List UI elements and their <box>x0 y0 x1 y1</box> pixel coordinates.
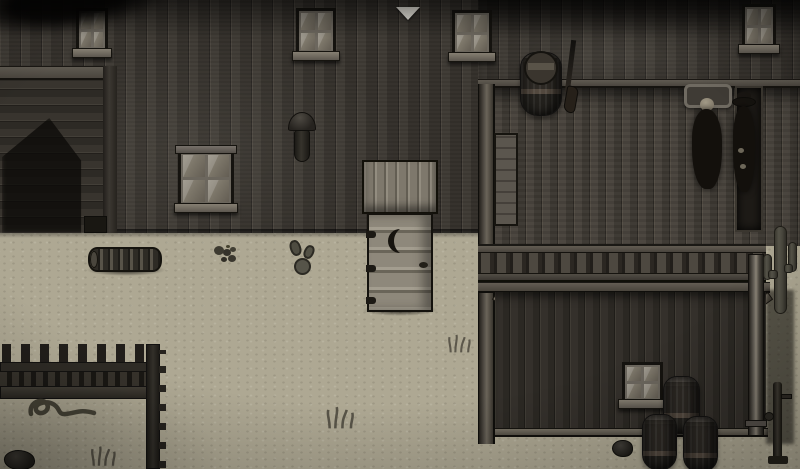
window-pane <box>183 180 205 202</box>
grass-tuft <box>88 444 120 467</box>
window-pane <box>474 15 488 32</box>
window-sill <box>738 44 780 54</box>
window-sill <box>448 52 496 62</box>
grass-tuft <box>324 404 358 430</box>
fence-side-pickets <box>159 350 166 468</box>
window-pane <box>208 155 230 177</box>
cactus-arm-joint <box>784 264 793 273</box>
window-pane <box>761 9 772 25</box>
storefront-baseboard <box>495 428 768 437</box>
window-sill <box>174 203 238 213</box>
npc-body <box>692 109 722 189</box>
door-handle <box>419 262 428 268</box>
railing-bottom-rail <box>478 273 766 282</box>
barn-lintel <box>0 66 117 80</box>
window-pane <box>208 180 230 202</box>
pump-handle <box>781 394 792 399</box>
porch-barrel <box>520 52 562 116</box>
window-pane <box>318 13 332 30</box>
railing-top-rail <box>478 244 766 253</box>
window-top-2 <box>296 8 336 55</box>
fence-balusters <box>0 372 154 386</box>
keg-stack-right <box>683 416 718 469</box>
window-pane <box>301 33 315 50</box>
window-pane <box>183 155 205 177</box>
game-viewport[interactable] <box>0 0 800 469</box>
railing-balusters <box>478 253 766 273</box>
window-pane <box>747 28 758 44</box>
cactus-arm-joint <box>768 270 778 279</box>
rock <box>4 450 35 469</box>
barn-step <box>84 216 107 233</box>
window-pane <box>94 32 104 48</box>
window-pane <box>457 35 471 52</box>
window-top-4 <box>742 4 776 48</box>
npc-hand <box>740 164 746 169</box>
barrel-lid <box>524 51 558 85</box>
pump-wheel-icon <box>764 412 774 421</box>
rock <box>612 440 633 457</box>
wall-lamp <box>288 112 316 164</box>
saguaro-cactus <box>762 226 798 316</box>
fence-top-rail <box>0 362 154 372</box>
keg-stack-left <box>642 414 677 469</box>
lamp-hood <box>288 112 316 131</box>
crescent-moon-icon <box>385 227 409 255</box>
window-pane <box>644 367 658 381</box>
window-pane <box>457 15 471 32</box>
npc-hand <box>738 148 744 153</box>
window-pane <box>301 13 315 30</box>
window-pane <box>318 33 332 50</box>
barn-corner-beam <box>103 66 117 233</box>
window-pane <box>747 9 758 25</box>
window-pane <box>81 32 91 48</box>
outhouse-door[interactable] <box>367 213 433 312</box>
cactus-pad <box>294 258 311 275</box>
event-marker-icon <box>396 7 420 20</box>
snake <box>26 394 98 426</box>
fence-pickets <box>2 344 152 364</box>
window-pane <box>644 384 658 398</box>
door-hinge <box>366 265 376 272</box>
door-hinge <box>366 231 376 238</box>
window-pane <box>627 384 641 398</box>
window-pane <box>474 35 488 52</box>
window-mid-left <box>178 150 234 207</box>
window-sill <box>618 399 667 409</box>
prickly-pear-cactus <box>286 236 318 280</box>
grass-tuft <box>446 332 474 354</box>
npc-villager-hat[interactable] <box>730 92 758 194</box>
window-pane <box>761 28 772 44</box>
window-sill <box>72 48 112 58</box>
cactus-pad <box>288 239 303 258</box>
fallen-log <box>88 247 162 272</box>
window-lower <box>622 362 663 403</box>
window-sill <box>292 51 340 61</box>
rifle <box>560 40 582 114</box>
barrel-lid-plank <box>528 63 554 70</box>
door-hinge <box>366 297 376 304</box>
npc-body <box>733 106 755 192</box>
rifle-barrel <box>565 40 576 92</box>
outhouse <box>362 160 438 312</box>
lamp-body <box>294 130 310 162</box>
window-top-3 <box>452 10 492 56</box>
log-end-cap <box>90 251 98 268</box>
window-pane <box>627 367 641 381</box>
window-lintel <box>175 145 237 154</box>
crate <box>494 133 518 226</box>
npc-villager[interactable] <box>690 96 724 192</box>
hand-pump <box>764 382 792 466</box>
outhouse-roof <box>362 160 438 214</box>
fence-side-post <box>146 344 160 469</box>
pump-base <box>768 456 788 464</box>
dry-shrub <box>214 246 224 255</box>
